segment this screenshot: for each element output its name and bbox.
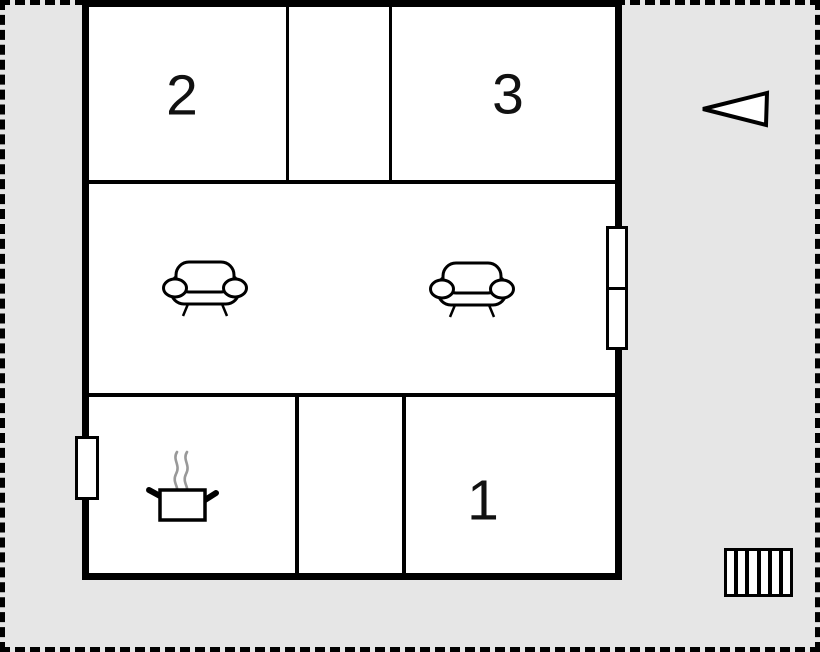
stairs-icon <box>724 548 793 597</box>
room-1-label: 1 <box>467 473 499 530</box>
stair-step <box>749 551 756 594</box>
floor-plan-canvas: 2 3 1 <box>0 0 820 652</box>
stair-step <box>761 551 768 594</box>
wall-room1-left <box>402 397 406 573</box>
stair-step <box>727 551 734 594</box>
sofa-icon <box>162 260 248 318</box>
window-left-wall <box>75 436 99 500</box>
room-2-label: 2 <box>166 68 198 125</box>
room-3-label: 3 <box>492 67 524 124</box>
wall-room2-right <box>286 7 289 180</box>
sofa-icon <box>429 261 515 319</box>
direction-arrow-icon <box>696 86 774 132</box>
wall-top-band-bottom <box>89 180 615 184</box>
stair-step <box>783 551 790 594</box>
wall-kitchen-right <box>295 397 299 573</box>
cooking-pot-icon <box>144 446 220 524</box>
wall-bottom-band-top <box>89 393 615 397</box>
window-divider <box>609 287 625 290</box>
stair-step <box>772 551 779 594</box>
stair-step <box>738 551 745 594</box>
window-right-wall <box>606 226 628 350</box>
wall-room3-left <box>389 7 392 180</box>
